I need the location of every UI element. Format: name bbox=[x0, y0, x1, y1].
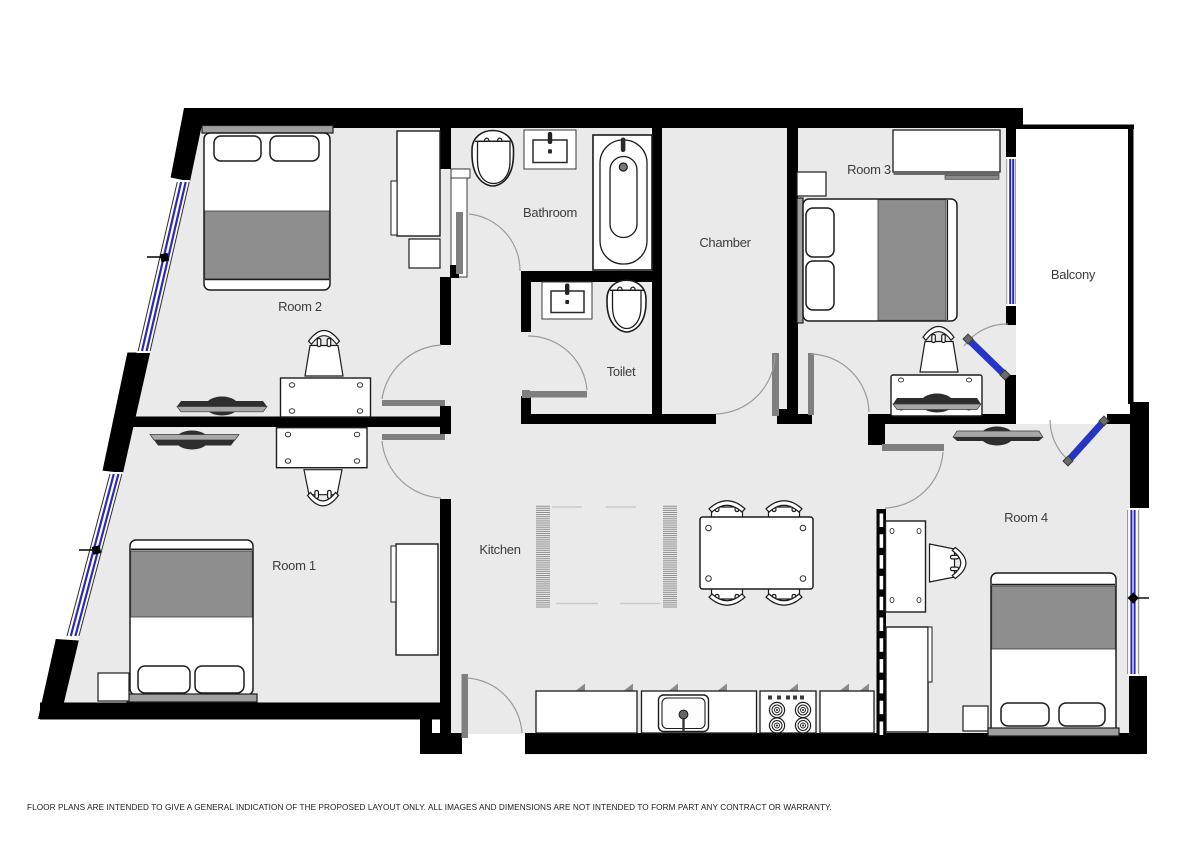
svg-text:Room 3: Room 3 bbox=[847, 162, 891, 177]
svg-text:Chamber: Chamber bbox=[699, 235, 751, 250]
svg-text:Room 2: Room 2 bbox=[278, 299, 322, 314]
svg-text:FLOOR PLANS ARE INTENDED TO GI: FLOOR PLANS ARE INTENDED TO GIVE A GENER… bbox=[27, 803, 832, 812]
svg-text:Room 1: Room 1 bbox=[272, 558, 316, 573]
svg-text:Kitchen: Kitchen bbox=[479, 542, 520, 557]
svg-text:Room 4: Room 4 bbox=[1004, 510, 1048, 525]
svg-text:Bathroom: Bathroom bbox=[523, 205, 577, 220]
svg-text:Toilet: Toilet bbox=[607, 364, 636, 379]
svg-text:Balcony: Balcony bbox=[1051, 267, 1096, 282]
